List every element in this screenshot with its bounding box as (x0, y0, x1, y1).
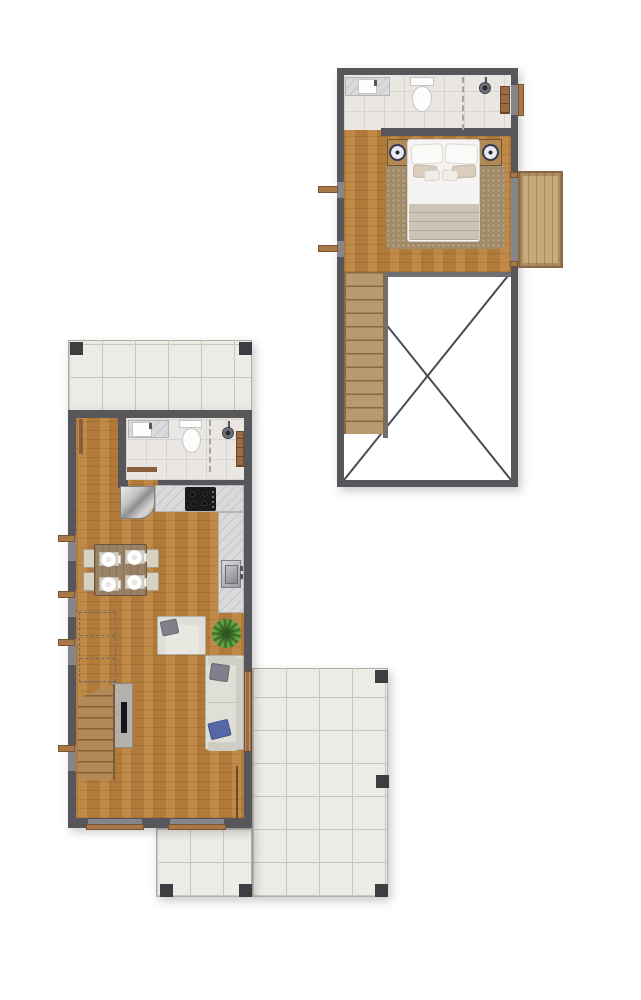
kitchen-sink (221, 560, 241, 588)
plate (127, 550, 142, 565)
stair-projection-line (80, 658, 115, 659)
bath-sliding-door (127, 467, 157, 472)
bathroom-partition-wall (381, 128, 511, 136)
lamp-left (389, 144, 406, 161)
ground-floor-plan (68, 410, 252, 828)
stair-projection-dashed (79, 612, 116, 682)
dining-table (94, 544, 147, 596)
terrace-post (160, 884, 173, 897)
sofa-pillow-gray (209, 663, 230, 682)
cutlery (117, 555, 121, 564)
armchair (157, 616, 206, 655)
ground-sink-faucet (149, 423, 152, 429)
tv-panel (112, 683, 133, 748)
patio-post (239, 342, 252, 355)
left-window-sill (58, 639, 75, 646)
cutlery (143, 553, 147, 562)
upper-right-window (511, 85, 518, 115)
bedroom-window-sill (318, 186, 338, 193)
bottom-window-sill (86, 824, 144, 830)
balcony-threshold (510, 261, 518, 267)
cooktop-knob (212, 491, 214, 493)
cutlery (143, 578, 147, 587)
left-window-sill (58, 591, 75, 598)
upper-staircase (344, 272, 385, 434)
cooktop (185, 487, 216, 511)
burner (200, 499, 209, 508)
sofa-arm (208, 742, 237, 751)
bedroom-left-window (337, 182, 344, 198)
balcony-deck (518, 171, 563, 268)
cooktop-knob (212, 496, 214, 498)
left-window-sill (58, 745, 75, 752)
balcony-door-opening (511, 177, 518, 263)
upper-floor-plan (337, 68, 518, 487)
plate (101, 577, 116, 592)
dining-chair (146, 572, 159, 591)
terrace-post (375, 670, 388, 683)
ground-staircase (78, 684, 115, 780)
plate (127, 575, 142, 590)
dining-chair (146, 549, 159, 568)
kitchen-faucet (240, 566, 243, 571)
upper-bath-closet (500, 86, 510, 114)
entry-patio (68, 340, 252, 412)
upper-toilet-tank (410, 77, 434, 86)
terrace-post (239, 884, 252, 897)
patio-post (70, 342, 83, 355)
sofa-cushion-divider (208, 702, 237, 703)
bottom-window-sill (168, 824, 226, 830)
bed-blanket (409, 204, 479, 240)
side-door-leaf (236, 766, 238, 820)
living-sliding-door (244, 671, 252, 752)
floorplan-canvas (0, 0, 641, 1000)
ground-toilet-tank (179, 420, 202, 428)
plate (101, 552, 116, 567)
pillow-small (441, 169, 458, 182)
double-bed (407, 139, 480, 242)
pillow-white (444, 143, 478, 165)
kitchen-faucet (240, 574, 243, 579)
tv-screen (121, 702, 127, 733)
burner (188, 490, 197, 499)
ground-shower-head (222, 427, 234, 439)
cooktop-knob (212, 501, 214, 503)
sofa-back (236, 658, 243, 749)
ground-shower-glass-partition (209, 420, 211, 472)
void-railing-top (383, 272, 511, 277)
refrigerator (120, 486, 155, 519)
cooktop-knob (212, 506, 214, 508)
bedroom-window-sill (318, 245, 338, 252)
sofa (205, 655, 244, 750)
entry-door-leaf (79, 419, 83, 454)
left-window-sill (58, 535, 75, 542)
terrace-post (375, 884, 388, 897)
upper-shower-glass-partition (462, 77, 464, 130)
stair-projection-line (80, 635, 115, 636)
terrace-post (376, 775, 389, 788)
sink-basin (225, 565, 238, 584)
upper-sink-faucet (374, 80, 377, 86)
potted-plant (212, 619, 241, 648)
burner (189, 500, 197, 508)
pillow-small (423, 169, 440, 182)
terrace-bottom (156, 828, 252, 897)
burner (201, 490, 209, 498)
ground-bath-closet (236, 431, 244, 467)
upper-right-window-sill (518, 84, 524, 116)
terrace-right (252, 668, 388, 897)
pillow-white (410, 143, 443, 165)
cutlery (117, 580, 121, 589)
upper-shower-head (479, 82, 491, 94)
lamp-right (482, 144, 499, 161)
bedroom-left-window (337, 241, 344, 257)
balcony-threshold (510, 172, 518, 178)
hall-bath-partition (118, 418, 126, 480)
sofa-pillow-blue (207, 719, 231, 741)
